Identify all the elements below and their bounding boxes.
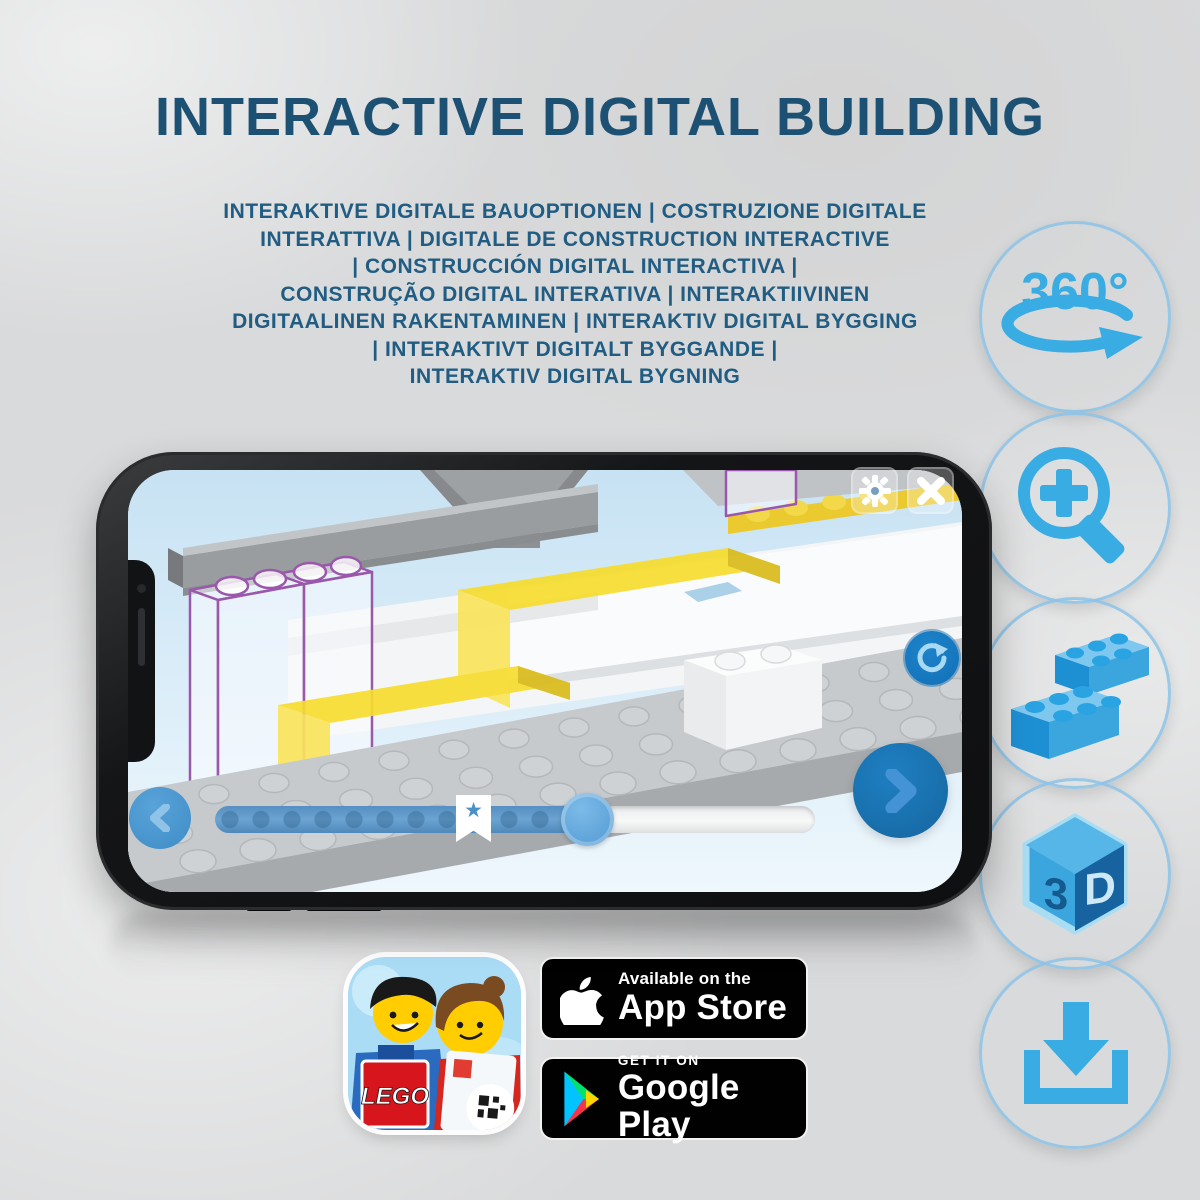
close-button[interactable] bbox=[907, 467, 954, 514]
subtitle-line: | INTERAKTIVT DIGITALT BYGGANDE | bbox=[0, 336, 1150, 364]
lego-app-art: LEGO bbox=[348, 957, 521, 1130]
google-play-badge[interactable]: GET IT ON Google Play bbox=[540, 1057, 808, 1140]
phone-camera-dot bbox=[137, 584, 146, 593]
brick-stack-icon bbox=[997, 615, 1153, 771]
zoom-in-icon bbox=[1000, 433, 1150, 583]
subtitle-line: INTERAKTIVE DIGITALE BAUOPTIONEN | COSTR… bbox=[0, 198, 1150, 226]
subtitle-line: INTERAKTIV DIGITAL BYGNING bbox=[0, 363, 1150, 391]
gear-icon bbox=[859, 475, 891, 507]
phone-speaker-slit bbox=[138, 608, 145, 666]
google-play-icon bbox=[556, 1069, 604, 1129]
apple-logo-icon bbox=[560, 973, 604, 1025]
rotate-icon bbox=[915, 641, 949, 675]
feature-download-badge bbox=[979, 957, 1171, 1149]
chevron-right-icon bbox=[882, 769, 920, 813]
svg-text:360°: 360° bbox=[1021, 263, 1129, 321]
download-icon bbox=[1000, 978, 1150, 1128]
settings-button[interactable] bbox=[851, 467, 898, 514]
lego-app-icon[interactable]: LEGO bbox=[348, 957, 521, 1130]
app-store-name: App Store bbox=[618, 990, 787, 1027]
previous-step-button[interactable] bbox=[129, 787, 191, 849]
svg-text:D: D bbox=[1084, 862, 1116, 915]
google-play-tagline: GET IT ON bbox=[618, 1054, 806, 1068]
feature-360-badge: 360° bbox=[979, 221, 1171, 413]
subtitle-line: CONSTRUÇÃO DIGITAL INTERATIVA | INTERAKT… bbox=[0, 281, 1150, 309]
app-store-badge[interactable]: Available on the App Store bbox=[540, 957, 808, 1040]
subtitle-line: DIGITAALINEN RAKENTAMINEN | INTERAKTIV D… bbox=[0, 308, 1150, 336]
feature-3d-badge: 3 D bbox=[979, 778, 1171, 970]
next-step-button[interactable] bbox=[853, 743, 948, 838]
chevron-left-icon bbox=[148, 804, 172, 832]
page-title: INTERACTIVE DIGITAL BUILDING bbox=[0, 86, 1200, 148]
slider-fill bbox=[215, 806, 587, 833]
subtitle-line: INTERATTIVA | DIGITALE DE CONSTRUCTION I… bbox=[0, 226, 1150, 254]
close-icon bbox=[916, 476, 946, 506]
rotate-piece-button[interactable] bbox=[905, 631, 959, 685]
subtitle-line: | CONSTRUCCIÓN DIGITAL INTERACTIVA | bbox=[0, 253, 1150, 281]
marketing-page: INTERACTIVE DIGITAL BUILDING INTERAKTIVE… bbox=[0, 0, 1200, 1200]
build-progress-slider[interactable]: ★ bbox=[215, 806, 815, 833]
feature-zoom-badge bbox=[979, 412, 1171, 604]
svg-text:LEGO: LEGO bbox=[361, 1083, 429, 1110]
slider-handle[interactable] bbox=[561, 793, 614, 846]
subtitle-multilang: INTERAKTIVE DIGITALE BAUOPTIONEN | COSTR… bbox=[0, 198, 1150, 391]
app-store-tagline: Available on the bbox=[618, 970, 787, 988]
feature-brick-badge bbox=[979, 597, 1171, 789]
360-rotation-icon: 360° bbox=[995, 257, 1155, 377]
3d-cube-icon: 3 D bbox=[1000, 799, 1150, 949]
svg-text:3: 3 bbox=[1044, 868, 1068, 920]
google-play-name: Google Play bbox=[618, 1070, 806, 1144]
